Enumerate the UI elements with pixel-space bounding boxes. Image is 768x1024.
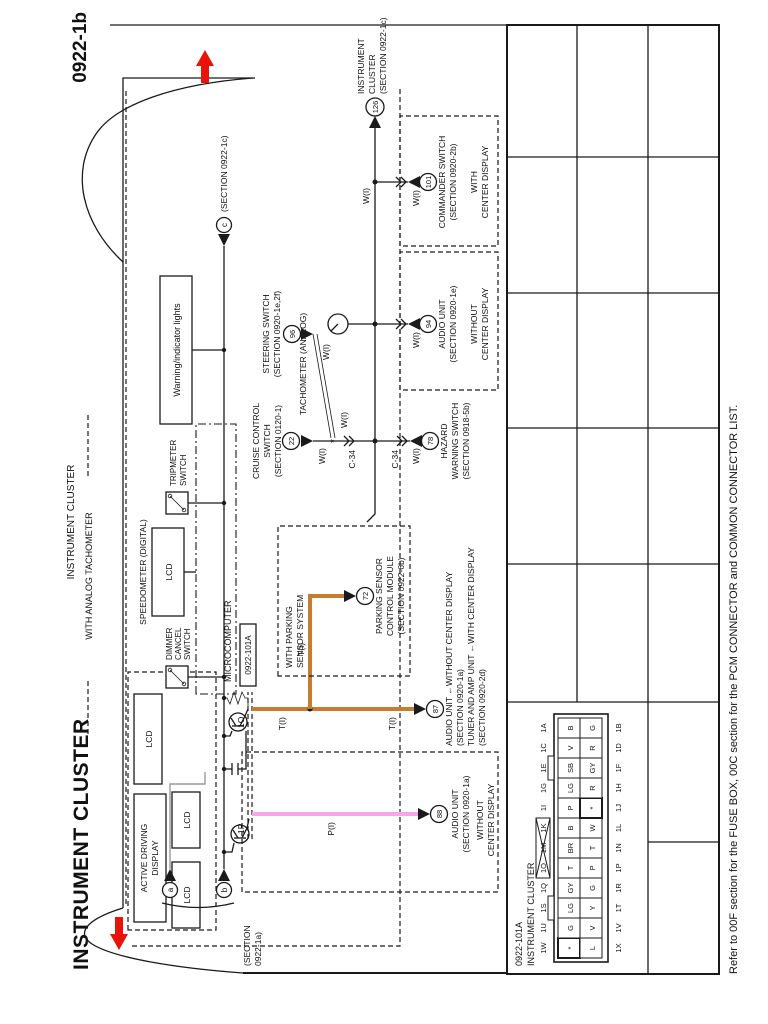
pin-wire-color: * <box>588 806 597 809</box>
pin-wire-color: P <box>566 805 575 810</box>
tripmeter-switch-label: SWITCH <box>179 454 188 486</box>
steering-label: (SECTION 0920-1e,2f) <box>272 291 282 378</box>
wire-b-to-c: c (SECTION 0922-1c) <box>217 135 232 869</box>
active-driving-display-label: ACTIVE DRIVING <box>139 824 149 892</box>
reference-table: 0922-101A INSTRUMENT CLUSTER 1W1X*L1U1VG… <box>507 25 719 974</box>
wire-label-t-i: T(I) <box>277 717 287 730</box>
without-center-display-label: WITHOUT <box>469 304 479 344</box>
wire-label-w-i: W(I) <box>321 344 331 360</box>
ref-22-circle: 22 <box>287 437 296 445</box>
pin-id-bottom: 1H <box>614 783 623 793</box>
source-section-label: (SECTION <box>242 925 252 966</box>
speedometer-label: SPEEDOMETER (DIGITAL) <box>138 519 148 625</box>
pin-id-top: 1E <box>539 763 548 772</box>
with-parking-sensor-label: WITH PARKING <box>284 606 294 668</box>
pin-id-top: 1G <box>539 783 548 793</box>
ref-101-arrow-icon <box>408 176 420 188</box>
pin-id-top: 1W <box>539 941 548 953</box>
wire-label-t-i: T(I) <box>387 717 397 730</box>
cruise-label: SWITCH <box>262 424 272 458</box>
ref-72-label: PARKING SENSOR <box>374 558 384 634</box>
pin-wire-color: Y <box>588 905 597 910</box>
lcd-label: LCD <box>144 730 154 747</box>
ref-88-circle: 88 <box>435 810 444 818</box>
ref-88-label: AUDIO UNIT <box>450 789 460 838</box>
ref-126-arrow-icon <box>369 116 381 128</box>
pin-wire-color: GY <box>566 883 575 894</box>
pin-id-top: 1U <box>539 923 548 933</box>
c34-label: C-34 <box>347 450 357 469</box>
ref-72-circle: 72 <box>361 592 370 600</box>
continues-previous-page-arrow-icon <box>110 917 128 950</box>
ref-87-label: (SECTION 0920-2d) <box>477 669 487 746</box>
pin-wire-color: B <box>566 725 575 730</box>
pin-wire-color: * <box>566 946 575 949</box>
audio-unit-branch: W(I) 94 AUDIO UNIT (SECTION 0920-1e) WIT… <box>375 252 498 390</box>
landscape-canvas: INSTRUMENT CLUSTER 0922-1b INSTRUMENT CL… <box>0 0 768 1024</box>
ref-87-circle: 87 <box>431 705 440 713</box>
hazard-label: (SECTION 0918-5b) <box>461 402 471 479</box>
ref-101-label: (SECTION 0920-2b) <box>448 143 458 220</box>
without-center-display-label: CENTER DISPLAY <box>480 287 490 360</box>
wire-label-w-i: W(I) <box>339 412 349 428</box>
manual-page: INSTRUMENT CLUSTER 0922-1b INSTRUMENT CL… <box>0 0 768 1024</box>
ref-94-arrow-icon <box>408 318 420 330</box>
pin-id-bottom: 1R <box>614 883 623 893</box>
ref-72-label: CONTROL MODULE <box>385 556 395 636</box>
ref-87-label: TUNER AND AMP UNIT ←WITH CENTER DISPLAY <box>466 547 476 746</box>
pin-1o-label: 1O <box>236 716 246 728</box>
ref-88-label: (SECTION 0920-1a) <box>461 775 471 852</box>
pin-wire-color: G <box>588 725 597 731</box>
pin-id-top: 1K <box>539 823 548 832</box>
ref-126-label: (SECTION 0922-1c) <box>378 17 388 94</box>
wire-label-w-i: W(I) <box>361 188 371 204</box>
pinout-title-name: INSTRUMENT CLUSTER <box>526 862 536 966</box>
variant-margin-label: WITH ANALOG TACHOMETER <box>84 512 94 640</box>
with-parking-sensor-label: SENSOR SYSTEM <box>295 595 305 668</box>
ref-126-label: INSTRUMENT <box>356 38 366 94</box>
cruise-label: (SECTION 0120-1) <box>273 405 283 477</box>
pin-wire-color: T <box>566 865 575 870</box>
pin-id-bottom: 1L <box>614 824 623 832</box>
hazard-label: HAZARD <box>439 424 449 459</box>
with-center-display-label: CENTER DISPLAY <box>480 145 490 218</box>
pin-wire-color: R <box>588 785 597 791</box>
pin-id-bottom: 1V <box>614 923 623 932</box>
pin-wire-color: B <box>566 825 575 830</box>
pin-wire-color: L <box>588 946 597 950</box>
pin-id-bottom: 1J <box>614 804 623 812</box>
commander-switch-branch: W(I) 101 COMMANDER SWITCH (SECTION 0920-… <box>375 116 498 246</box>
pin-id-bottom: 1T <box>614 903 623 912</box>
hazard-label: WARNING SWITCH <box>450 403 460 480</box>
ref-72-arrow-icon <box>344 590 356 602</box>
cruise-hazard-branch: CRUISE CONTROL SWITCH (SECTION 0120-1) 2… <box>251 402 471 479</box>
pin-id-top: 1S <box>539 903 548 912</box>
cluster-margin-label: INSTRUMENT CLUSTER <box>66 465 77 580</box>
pin-wire-color: GY <box>588 763 597 774</box>
active-driving-display-label: DISPLAY <box>150 840 160 876</box>
ref-c-section-label: (SECTION 0922-1c) <box>219 135 229 212</box>
ref-22-arrow-icon <box>301 435 313 447</box>
lcd-label: LCD <box>164 563 174 580</box>
tachometer-label: TACHOMETER (ANALOG) <box>298 313 308 415</box>
ref-94-circle: 94 <box>424 320 433 328</box>
page-title: INSTRUMENT CLUSTER <box>70 718 93 970</box>
splice-mark: * <box>329 439 340 443</box>
pin-wire-color: BR <box>566 842 575 853</box>
footnote: Refer to 00F section for the FUSE BOX, 0… <box>728 405 740 974</box>
pin-id-bottom: 1N <box>614 843 623 853</box>
pin-id-bottom: 1D <box>614 743 623 753</box>
pin-id-bottom: 1X <box>614 943 623 952</box>
wire-label-p-i: P(I) <box>326 822 336 836</box>
wire-label-w-i: W(I) <box>411 448 421 464</box>
pin-wire-color: G <box>588 885 597 891</box>
steering-label: STEERING SWITCH <box>261 294 271 373</box>
ref-87-label: (SECTION 0920-1a) <box>455 669 465 746</box>
wire-label-w-i: W(I) <box>411 332 421 348</box>
pin-wire-color: P <box>588 865 597 870</box>
ref-126-label: CLUSTER <box>367 54 377 94</box>
without-center-display-label: CENTER DISPLAY <box>486 783 496 856</box>
source-section-label: 0922-1a) <box>253 932 263 966</box>
pin-id-bottom: 1P <box>614 863 623 872</box>
pin-wire-color: V <box>588 925 597 930</box>
wiring-diagram-svg: INSTRUMENT CLUSTER 0922-1b INSTRUMENT CL… <box>0 0 768 1024</box>
with-center-display-label: WITH <box>469 171 479 193</box>
tripmeter-switch-symbol <box>166 492 188 514</box>
tachometer-gauge-icon <box>328 314 375 334</box>
main-illumination-bus: W(I) 126 INSTRUMENT CLUSTER (SECTION 092… <box>356 17 388 522</box>
pin-id-bottom: 1B <box>614 723 623 732</box>
ref-94-label: AUDIO UNIT <box>437 299 447 348</box>
pin-1p-label: 1P <box>236 823 246 834</box>
instrument-cluster-box: ACTIVE DRIVING DISPLAY LCD LCD LCD SPEED… <box>126 89 400 946</box>
connector-id-label: 0922-101A <box>244 635 253 675</box>
cruise-label: CRUISE CONTROL <box>251 403 261 479</box>
pin-wire-color: V <box>566 745 575 750</box>
warning-indicator-lights-label: Warning/indicator lights <box>172 303 182 397</box>
ref-87-arrow-icon <box>414 703 426 715</box>
circuit-t-illumination: T(I) T(I) T(I) WITH PARKING SENSOR SYSTE… <box>252 526 487 746</box>
pin-id-top: 1M <box>539 843 548 853</box>
wire-label-w-i: W(I) <box>411 190 421 206</box>
dimmer-cancel-switch-symbol <box>166 666 188 688</box>
ref-72-label: (SECTION 0922-6b) <box>396 557 406 634</box>
pin-id-top: 1C <box>539 743 548 753</box>
ref-94-label: (SECTION 0920-1e) <box>448 285 458 362</box>
c34-label: C-34 <box>390 450 400 469</box>
ref-78-arrow-icon <box>410 435 422 447</box>
page-code: 0922-1b <box>70 12 91 83</box>
ref-88-arrow-icon <box>418 808 430 820</box>
ref-c-arrow-icon <box>218 234 230 246</box>
pinout-title-code: 0922-101A <box>514 922 524 966</box>
ref-126-circle: 126 <box>371 101 380 114</box>
lcd-label: LCD <box>182 811 192 828</box>
ref-101-circle: 101 <box>424 176 433 189</box>
pin-wire-color: T <box>588 845 597 850</box>
terminal-b-label: b <box>220 887 229 892</box>
pin-wire-color: G <box>566 925 575 931</box>
pin-id-top: 1Q <box>539 883 548 893</box>
circuit-p-illumination: P(I) 88 AUDIO UNIT (SECTION 0920-1a) WIT… <box>242 752 498 892</box>
dimmer-switch-label: SWITCH <box>183 628 192 660</box>
pin-wire-color: SB <box>566 763 575 773</box>
ref-96-circle: 96 <box>288 330 297 338</box>
ref-c-circle: c <box>220 223 229 227</box>
ref-87-label: AUDIO UNIT ←WITHOUT CENTER DISPLAY <box>444 571 454 746</box>
ref-101-label: COMMANDER SWITCH <box>437 136 447 229</box>
dimmer-switch-label: DIMMER <box>165 627 174 660</box>
terminal-b-arrow-icon <box>218 869 230 881</box>
pin-id-bottom: 1F <box>614 763 623 772</box>
pin-wire-color: R <box>588 745 597 751</box>
lcd-label: LCD <box>182 886 192 903</box>
wire-label-w-i: W(I) <box>317 448 327 464</box>
pin-wire-color: LG <box>566 903 575 913</box>
tripmeter-switch-label: TRIPMETER <box>169 440 178 486</box>
terminal-a-label: a <box>166 887 175 892</box>
ref-78-circle: 78 <box>426 437 435 445</box>
pin-wire-color: W <box>588 824 597 832</box>
without-center-display-label: WITHOUT <box>475 800 485 840</box>
dimmer-switch-label: CANCEL <box>174 627 183 660</box>
pin-id-top: 1I <box>539 805 548 811</box>
pin-wire-color: LG <box>566 783 575 793</box>
pin-id-top: 1A <box>539 723 548 732</box>
pin-id-top: 1O <box>539 863 548 873</box>
